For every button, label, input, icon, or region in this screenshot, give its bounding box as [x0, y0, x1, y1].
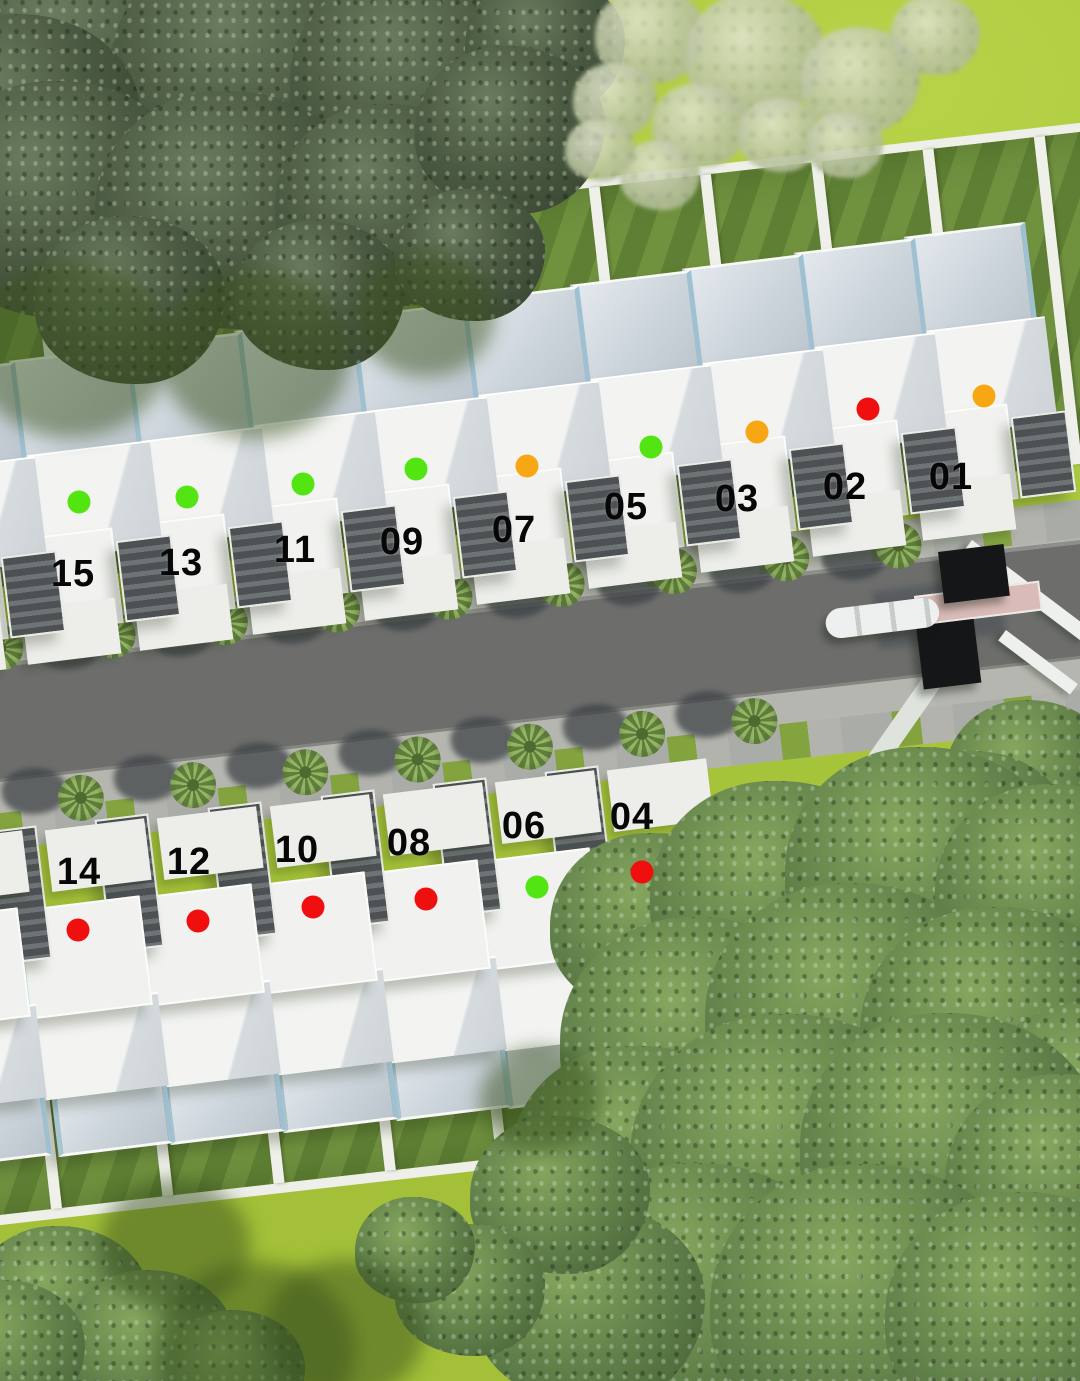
unit-01-status-dot[interactable] [973, 385, 996, 408]
unit-06-status-dot[interactable] [526, 876, 549, 899]
unit-08-label[interactable]: 08 [387, 824, 431, 862]
unit-10-label[interactable]: 10 [275, 831, 319, 869]
unit-01-label[interactable]: 01 [929, 458, 973, 496]
unit-09-status-dot[interactable] [405, 458, 428, 481]
unit-05-status-dot[interactable] [640, 436, 663, 459]
unit-02-status-dot[interactable] [857, 398, 880, 421]
unit-10-status-dot[interactable] [302, 896, 325, 919]
unit-02-label[interactable]: 02 [823, 468, 867, 506]
site-plan: 010203050709111315040608101214 [0, 0, 1080, 1381]
unit-12-status-dot[interactable] [187, 910, 210, 933]
unit-03-label[interactable]: 03 [715, 480, 759, 518]
unit-15-label[interactable]: 15 [51, 555, 95, 593]
unit-04-label[interactable]: 04 [610, 798, 654, 836]
unit-08-status-dot[interactable] [415, 888, 438, 911]
unit-07-status-dot[interactable] [516, 455, 539, 478]
unit-14-label[interactable]: 14 [57, 853, 101, 891]
unit-09-label[interactable]: 09 [380, 523, 424, 561]
unit-07-label[interactable]: 07 [492, 511, 536, 549]
unit-12-label[interactable]: 12 [167, 843, 211, 881]
unit-annotations: 010203050709111315040608101214 [0, 0, 1080, 1381]
unit-03-status-dot[interactable] [746, 421, 769, 444]
unit-15-status-dot[interactable] [68, 491, 91, 514]
unit-04-status-dot[interactable] [631, 861, 654, 884]
unit-13-status-dot[interactable] [176, 486, 199, 509]
unit-14-status-dot[interactable] [67, 919, 90, 942]
unit-06-label[interactable]: 06 [502, 807, 546, 845]
unit-11-status-dot[interactable] [292, 473, 315, 496]
unit-05-label[interactable]: 05 [604, 488, 648, 526]
unit-13-label[interactable]: 13 [159, 544, 203, 582]
unit-11-label[interactable]: 11 [274, 531, 316, 569]
